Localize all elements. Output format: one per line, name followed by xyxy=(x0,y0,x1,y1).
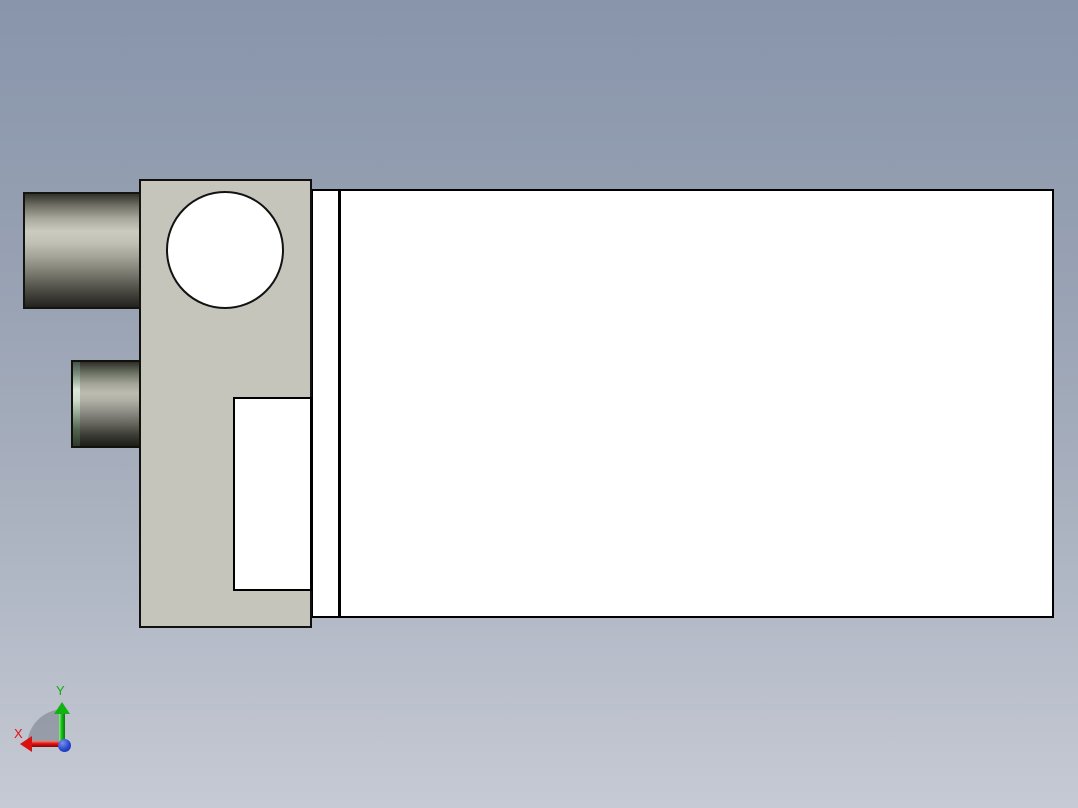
model-plate-notch-opening[interactable] xyxy=(233,397,312,591)
model-main-body-face[interactable] xyxy=(311,189,1054,618)
model-bottom-boss-cap-face[interactable] xyxy=(73,362,80,446)
model-bottom-boss-barrel-face[interactable] xyxy=(80,362,139,446)
z-axis-dot-icon[interactable] xyxy=(58,739,71,752)
x-axis-label: X xyxy=(14,727,23,740)
model-top-boss-cylinder[interactable] xyxy=(23,192,141,309)
model-body-silhouette-edge[interactable] xyxy=(338,191,341,616)
y-axis-arrowhead-icon[interactable] xyxy=(54,702,70,714)
model-plate-bore-hole[interactable] xyxy=(166,191,284,309)
model-bottom-boss-cylinder[interactable] xyxy=(71,360,141,448)
cad-viewport[interactable]: X Y xyxy=(0,0,1078,808)
y-axis-label: Y xyxy=(56,684,65,697)
